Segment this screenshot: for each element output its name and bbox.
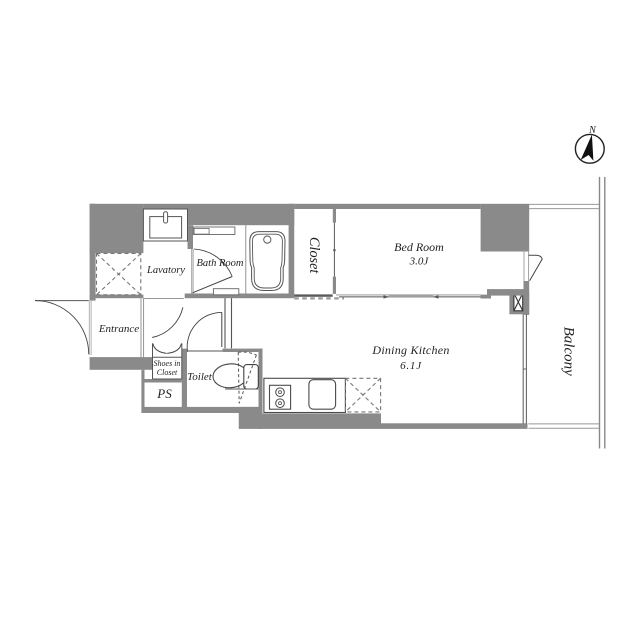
svg-text:Entrance: Entrance (98, 323, 139, 335)
svg-text:Bed Room: Bed Room (394, 240, 444, 254)
svg-text:Bath Room: Bath Room (197, 258, 244, 269)
svg-text:Lavatory: Lavatory (146, 265, 185, 276)
svg-text:Closet: Closet (157, 368, 178, 377)
svg-text:PS: PS (156, 386, 172, 401)
svg-text:Toilet: Toilet (187, 371, 213, 383)
svg-text:6.1J: 6.1J (400, 360, 422, 372)
svg-text:Shoes in: Shoes in (154, 359, 181, 368)
svg-text:Balcony: Balcony (560, 327, 576, 376)
svg-text:N: N (588, 125, 597, 136)
svg-text:3.0J: 3.0J (409, 256, 430, 268)
svg-text:Dining Kitchen: Dining Kitchen (371, 343, 449, 357)
svg-text:Closet: Closet (306, 237, 322, 274)
